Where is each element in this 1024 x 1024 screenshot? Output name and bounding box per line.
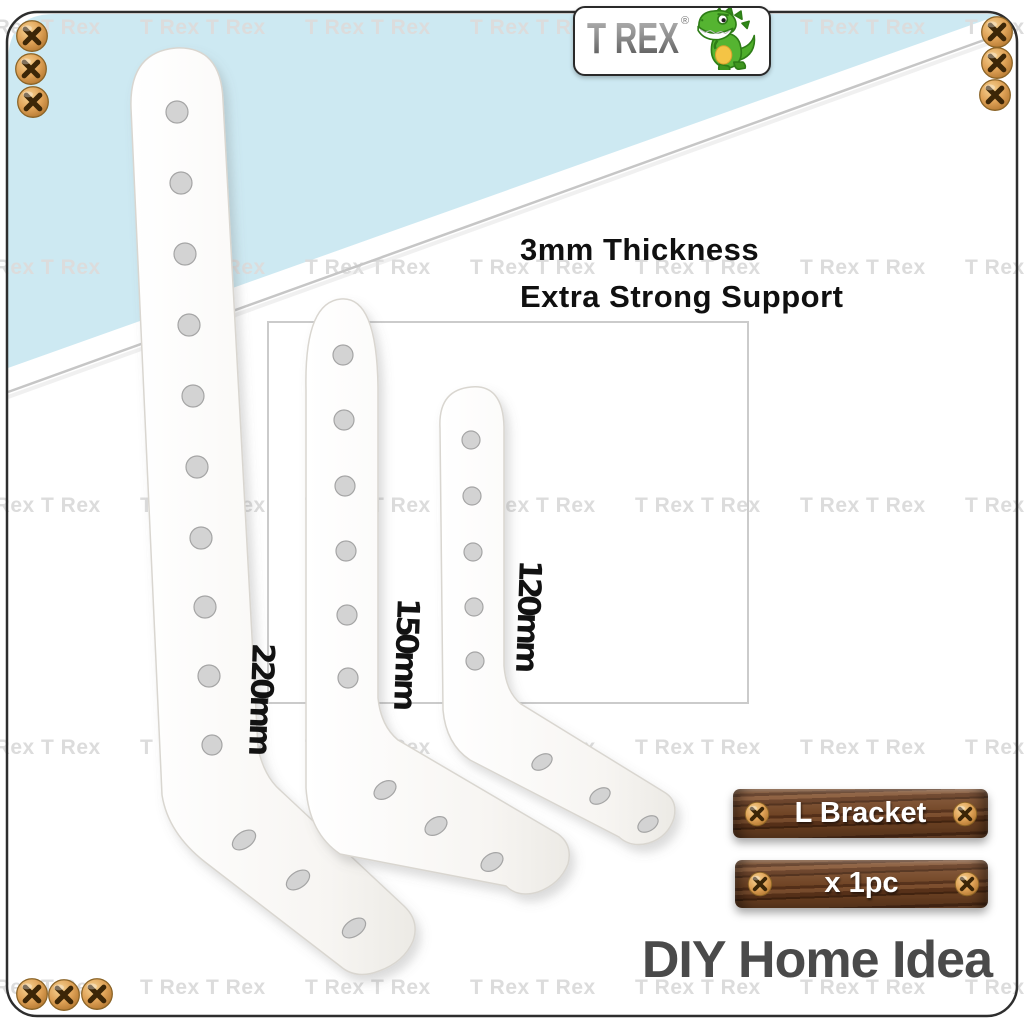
product-name-text: L Bracket xyxy=(733,796,988,829)
trex-dino-icon xyxy=(698,8,754,70)
corner-screw-icon xyxy=(980,46,1014,80)
plank-screw-icon xyxy=(952,801,978,827)
corner-screw-icon xyxy=(980,15,1014,49)
product-image: T Rex T RexT Rex T RexT Rex T RexT Rex T… xyxy=(0,0,1024,1024)
quantity-plate: x 1pc xyxy=(735,860,988,908)
corner-screw-icon xyxy=(15,19,49,53)
corner-screw-icon xyxy=(16,85,50,119)
headline-line2: Extra Strong Support xyxy=(520,273,843,320)
corner-screw-icon xyxy=(978,78,1012,112)
product-name-plate: L Bracket xyxy=(733,789,988,838)
corner-screw-icon xyxy=(47,978,81,1012)
size-label-220mm: 220mm xyxy=(241,642,281,753)
brand-logo-graphic: T REX ® xyxy=(575,8,765,70)
brand-logo: T REX ® xyxy=(573,6,771,76)
brand-logo-text: T REX xyxy=(587,14,679,63)
registered-mark: ® xyxy=(681,15,689,27)
l-bracket-120-image xyxy=(440,387,675,845)
corner-screw-icon xyxy=(80,977,114,1011)
corner-screw-icon xyxy=(15,977,49,1011)
size-label-150mm: 150mm xyxy=(386,597,426,708)
headline-line1: 3mm Thickness xyxy=(520,226,843,273)
plank-screw-icon xyxy=(747,871,773,897)
plank-screw-icon xyxy=(954,871,980,897)
headline: 3mm Thickness Extra Strong Support xyxy=(520,226,843,320)
footer-brand-text: DIY Home Idea xyxy=(642,930,992,990)
size-label-120mm: 120mm xyxy=(508,559,548,670)
plank-screw-icon xyxy=(744,801,770,827)
corner-screw-icon xyxy=(14,52,48,86)
